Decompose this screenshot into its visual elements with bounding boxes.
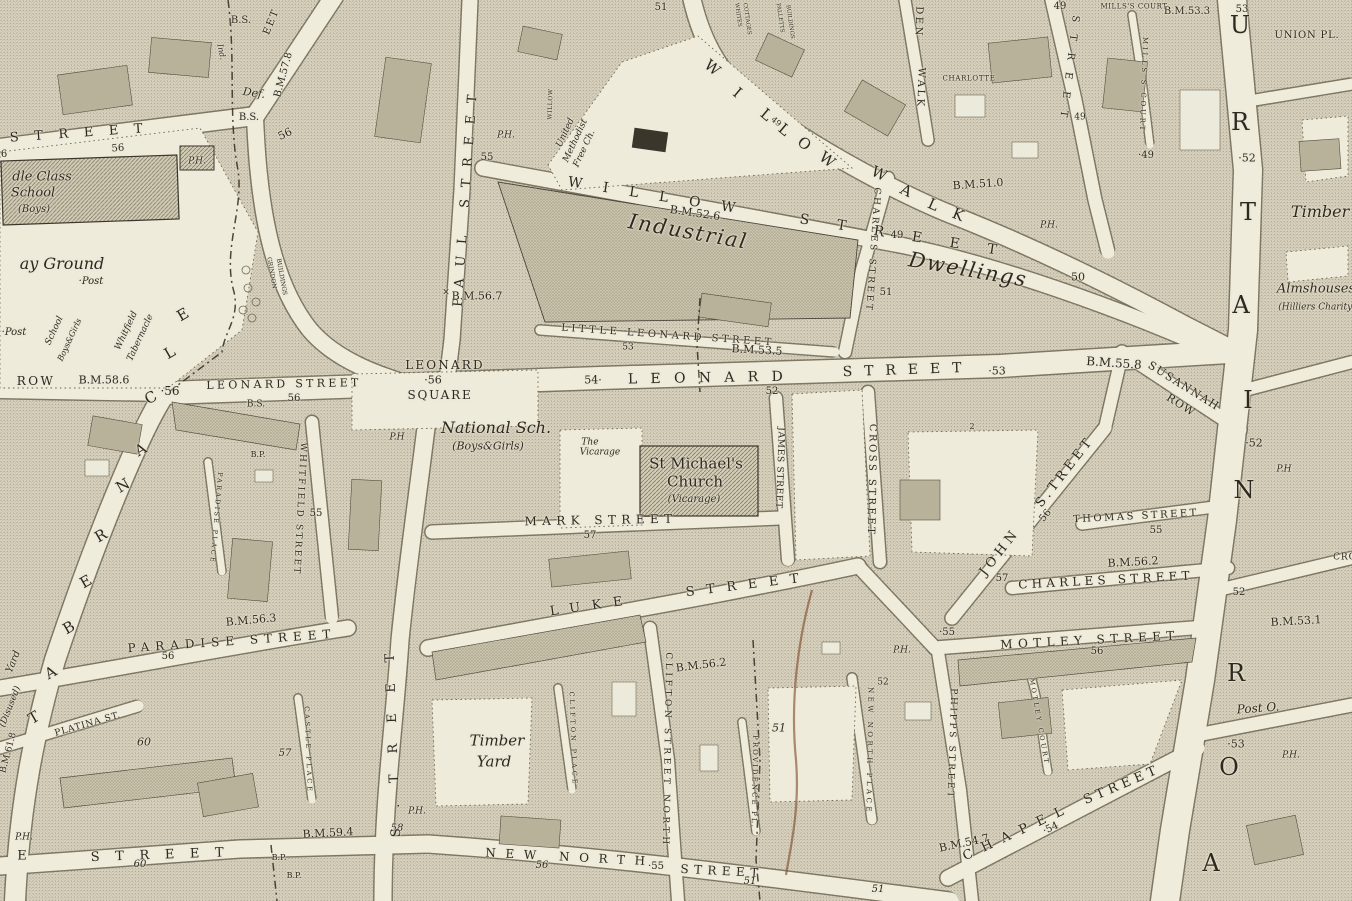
st-michaels-church-building (640, 446, 758, 516)
middle-class-school-building (1, 155, 179, 225)
public-house-building (180, 146, 214, 170)
map-viewport[interactable]: B.S.Ind.Def.B.S.EETB.M.57.856STREET566P.… (0, 0, 1352, 901)
historic-town-plan (0, 0, 1352, 901)
